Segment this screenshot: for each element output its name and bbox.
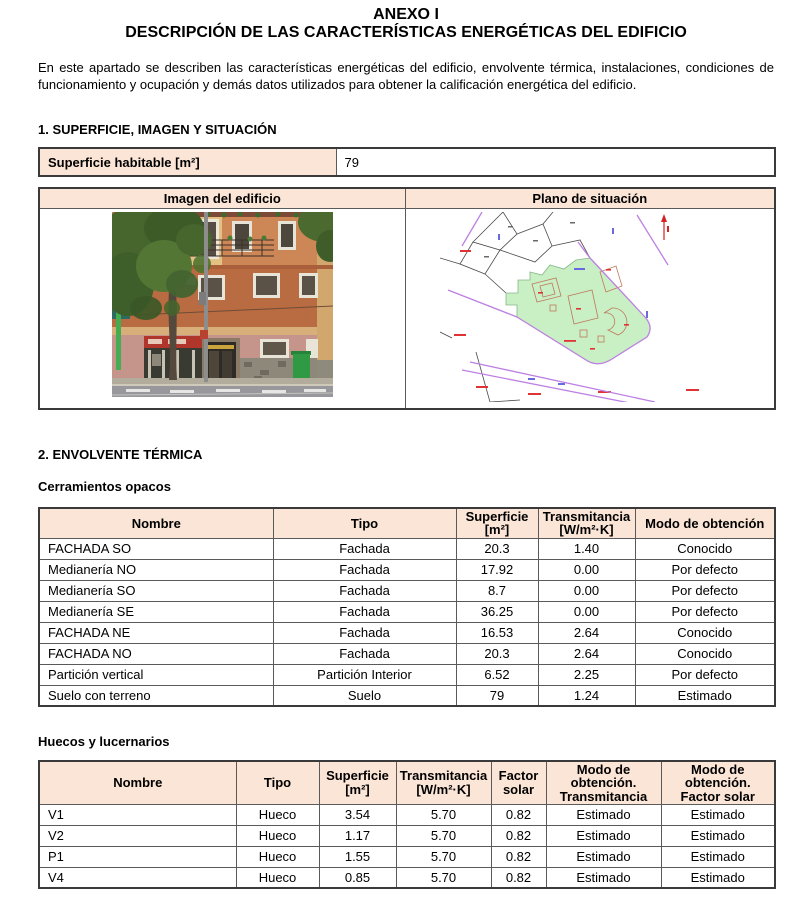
- building-photo: [112, 212, 333, 397]
- table-row: FACHADA SO Fachada 20.3 1.40 Conocido: [39, 538, 775, 559]
- table-cell: 1.24: [538, 685, 635, 706]
- table-cell: 20.3: [456, 538, 538, 559]
- table-cell: 2.64: [538, 622, 635, 643]
- table-header-cell: Transmitancia[W/m²·K]: [396, 761, 491, 804]
- table-header-cell: Nombre: [39, 761, 236, 804]
- superficie-label-cell: Superficie habitable [m²]: [39, 148, 336, 176]
- table-cell: Partición Interior: [273, 664, 456, 685]
- table-cell: Estimado: [546, 867, 661, 888]
- table-cell: Estimado: [661, 825, 775, 846]
- table-cell: Hueco: [236, 804, 319, 825]
- table-cell: Suelo: [273, 685, 456, 706]
- table-cell: 0.00: [538, 601, 635, 622]
- document-title: ANEXO I DESCRIPCIÓN DE LAS CARACTERÍSTIC…: [38, 6, 774, 42]
- intro-paragraph: En este apartado se describen las caract…: [38, 60, 774, 93]
- table-cell: Fachada: [273, 580, 456, 601]
- title-line-1: ANEXO I: [38, 6, 774, 24]
- table-row: Medianería NO Fachada 17.92 0.00 Por def…: [39, 559, 775, 580]
- table-row: Medianería SE Fachada 36.25 0.00 Por def…: [39, 601, 775, 622]
- image-column-header: Imagen del edificio: [39, 188, 405, 208]
- table-row: V4 Hueco 0.85 5.70 0.82 Estimado Estimad…: [39, 867, 775, 888]
- table-cell: Fachada: [273, 601, 456, 622]
- site-plan-drawing: [440, 212, 740, 402]
- table-cell: Fachada: [273, 538, 456, 559]
- table-row: Superficie habitable [m²] 79: [39, 148, 775, 176]
- table-cell: Hueco: [236, 825, 319, 846]
- table-cell: Medianería SO: [39, 580, 273, 601]
- table-cell: FACHADA NO: [39, 643, 273, 664]
- site-plan-cell: [405, 208, 775, 409]
- table-cell: 20.3: [456, 643, 538, 664]
- table-cell: Estimado: [546, 825, 661, 846]
- table-cell: Estimado: [546, 804, 661, 825]
- plan-column-header: Plano de situación: [405, 188, 775, 208]
- table-cell: Fachada: [273, 559, 456, 580]
- section-1-heading: 1. SUPERFICIE, IMAGEN Y SITUACIÓN: [38, 122, 774, 137]
- table-cell: Conocido: [635, 538, 775, 559]
- table-row: [39, 208, 775, 409]
- title-line-2: DESCRIPCIÓN DE LAS CARACTERÍSTICAS ENERG…: [38, 24, 774, 42]
- table-cell: 0.82: [491, 825, 546, 846]
- superficie-value-cell: 79: [336, 148, 775, 176]
- table-cell: 0.00: [538, 559, 635, 580]
- table-cell: 0.82: [491, 846, 546, 867]
- table-row: Partición vertical Partición Interior 6.…: [39, 664, 775, 685]
- table-cell: Conocido: [635, 643, 775, 664]
- table-header-cell: Factorsolar: [491, 761, 546, 804]
- table-cell: Estimado: [635, 685, 775, 706]
- table-cell: 5.70: [396, 846, 491, 867]
- table-cell: FACHADA NE: [39, 622, 273, 643]
- table-cell: 79: [456, 685, 538, 706]
- table-cell: 1.17: [319, 825, 396, 846]
- table-row: Imagen del edificio Plano de situación: [39, 188, 775, 208]
- image-plan-table: Imagen del edificio Plano de situación: [38, 187, 776, 410]
- table-cell: Hueco: [236, 867, 319, 888]
- table-row: V1 Hueco 3.54 5.70 0.82 Estimado Estimad…: [39, 804, 775, 825]
- table-cell: Por defecto: [635, 664, 775, 685]
- table-cell: Estimado: [661, 867, 775, 888]
- table-row: V2 Hueco 1.17 5.70 0.82 Estimado Estimad…: [39, 825, 775, 846]
- table-header-cell: Modo de obtención: [635, 508, 775, 538]
- table-row: Suelo con terreno Suelo 79 1.24 Estimado: [39, 685, 775, 706]
- table-cell: 5.70: [396, 825, 491, 846]
- table-header-cell: Superficie[m²]: [319, 761, 396, 804]
- table-cell: 1.55: [319, 846, 396, 867]
- table-header-cell: Tipo: [273, 508, 456, 538]
- table-cell: Hueco: [236, 846, 319, 867]
- table-cell: 0.82: [491, 867, 546, 888]
- table-cell: Por defecto: [635, 601, 775, 622]
- table-header-row: Nombre Tipo Superficie[m²] Transmitancia…: [39, 508, 775, 538]
- table-header-cell: Nombre: [39, 508, 273, 538]
- table-cell: 6.52: [456, 664, 538, 685]
- table-row: FACHADA NE Fachada 16.53 2.64 Conocido: [39, 622, 775, 643]
- opacos-subheading: Cerramientos opacos: [38, 479, 774, 494]
- table-row: P1 Hueco 1.55 5.70 0.82 Estimado Estimad…: [39, 846, 775, 867]
- cerramientos-opacos-table: Nombre Tipo Superficie[m²] Transmitancia…: [38, 507, 776, 707]
- table-cell: 36.25: [456, 601, 538, 622]
- table-header-cell: Modo deobtención.Factor solar: [661, 761, 775, 804]
- table-cell: 0.00: [538, 580, 635, 601]
- superficie-table: Superficie habitable [m²] 79: [38, 147, 776, 177]
- table-cell: P1: [39, 846, 236, 867]
- table-row: Medianería SO Fachada 8.7 0.00 Por defec…: [39, 580, 775, 601]
- table-header-cell: Tipo: [236, 761, 319, 804]
- document-page: ANEXO I DESCRIPCIÓN DE LAS CARACTERÍSTIC…: [0, 0, 812, 902]
- table-cell: 2.64: [538, 643, 635, 664]
- table-header-cell: Modo deobtención.Transmitancia: [546, 761, 661, 804]
- table-cell: 3.54: [319, 804, 396, 825]
- table-cell: 0.82: [491, 804, 546, 825]
- table-cell: Estimado: [546, 846, 661, 867]
- table-cell: Por defecto: [635, 559, 775, 580]
- huecos-lucernarios-table: Nombre Tipo Superficie[m²] Transmitancia…: [38, 760, 776, 889]
- table-row: FACHADA NO Fachada 20.3 2.64 Conocido: [39, 643, 775, 664]
- table-cell: 8.7: [456, 580, 538, 601]
- table-cell: V4: [39, 867, 236, 888]
- table-cell: Conocido: [635, 622, 775, 643]
- table-cell: 2.25: [538, 664, 635, 685]
- table-header-cell: Superficie[m²]: [456, 508, 538, 538]
- table-cell: 5.70: [396, 867, 491, 888]
- table-cell: FACHADA SO: [39, 538, 273, 559]
- table-cell: Estimado: [661, 804, 775, 825]
- table-header-row: Nombre Tipo Superficie[m²] Transmitancia…: [39, 761, 775, 804]
- table-cell: Medianería SE: [39, 601, 273, 622]
- building-photo-cell: [39, 208, 405, 409]
- table-cell: Suelo con terreno: [39, 685, 273, 706]
- huecos-subheading: Huecos y lucernarios: [38, 734, 774, 749]
- section-2-heading: 2. ENVOLVENTE TÉRMICA: [38, 447, 774, 462]
- table-cell: 1.40: [538, 538, 635, 559]
- table-cell: 17.92: [456, 559, 538, 580]
- table-cell: 5.70: [396, 804, 491, 825]
- table-cell: 0.85: [319, 867, 396, 888]
- table-cell: Medianería NO: [39, 559, 273, 580]
- table-cell: V2: [39, 825, 236, 846]
- table-cell: Fachada: [273, 622, 456, 643]
- table-cell: Por defecto: [635, 580, 775, 601]
- table-header-cell: Transmitancia[W/m²·K]: [538, 508, 635, 538]
- table-cell: Estimado: [661, 846, 775, 867]
- table-cell: 16.53: [456, 622, 538, 643]
- table-cell: Fachada: [273, 643, 456, 664]
- table-cell: Partición vertical: [39, 664, 273, 685]
- table-cell: V1: [39, 804, 236, 825]
